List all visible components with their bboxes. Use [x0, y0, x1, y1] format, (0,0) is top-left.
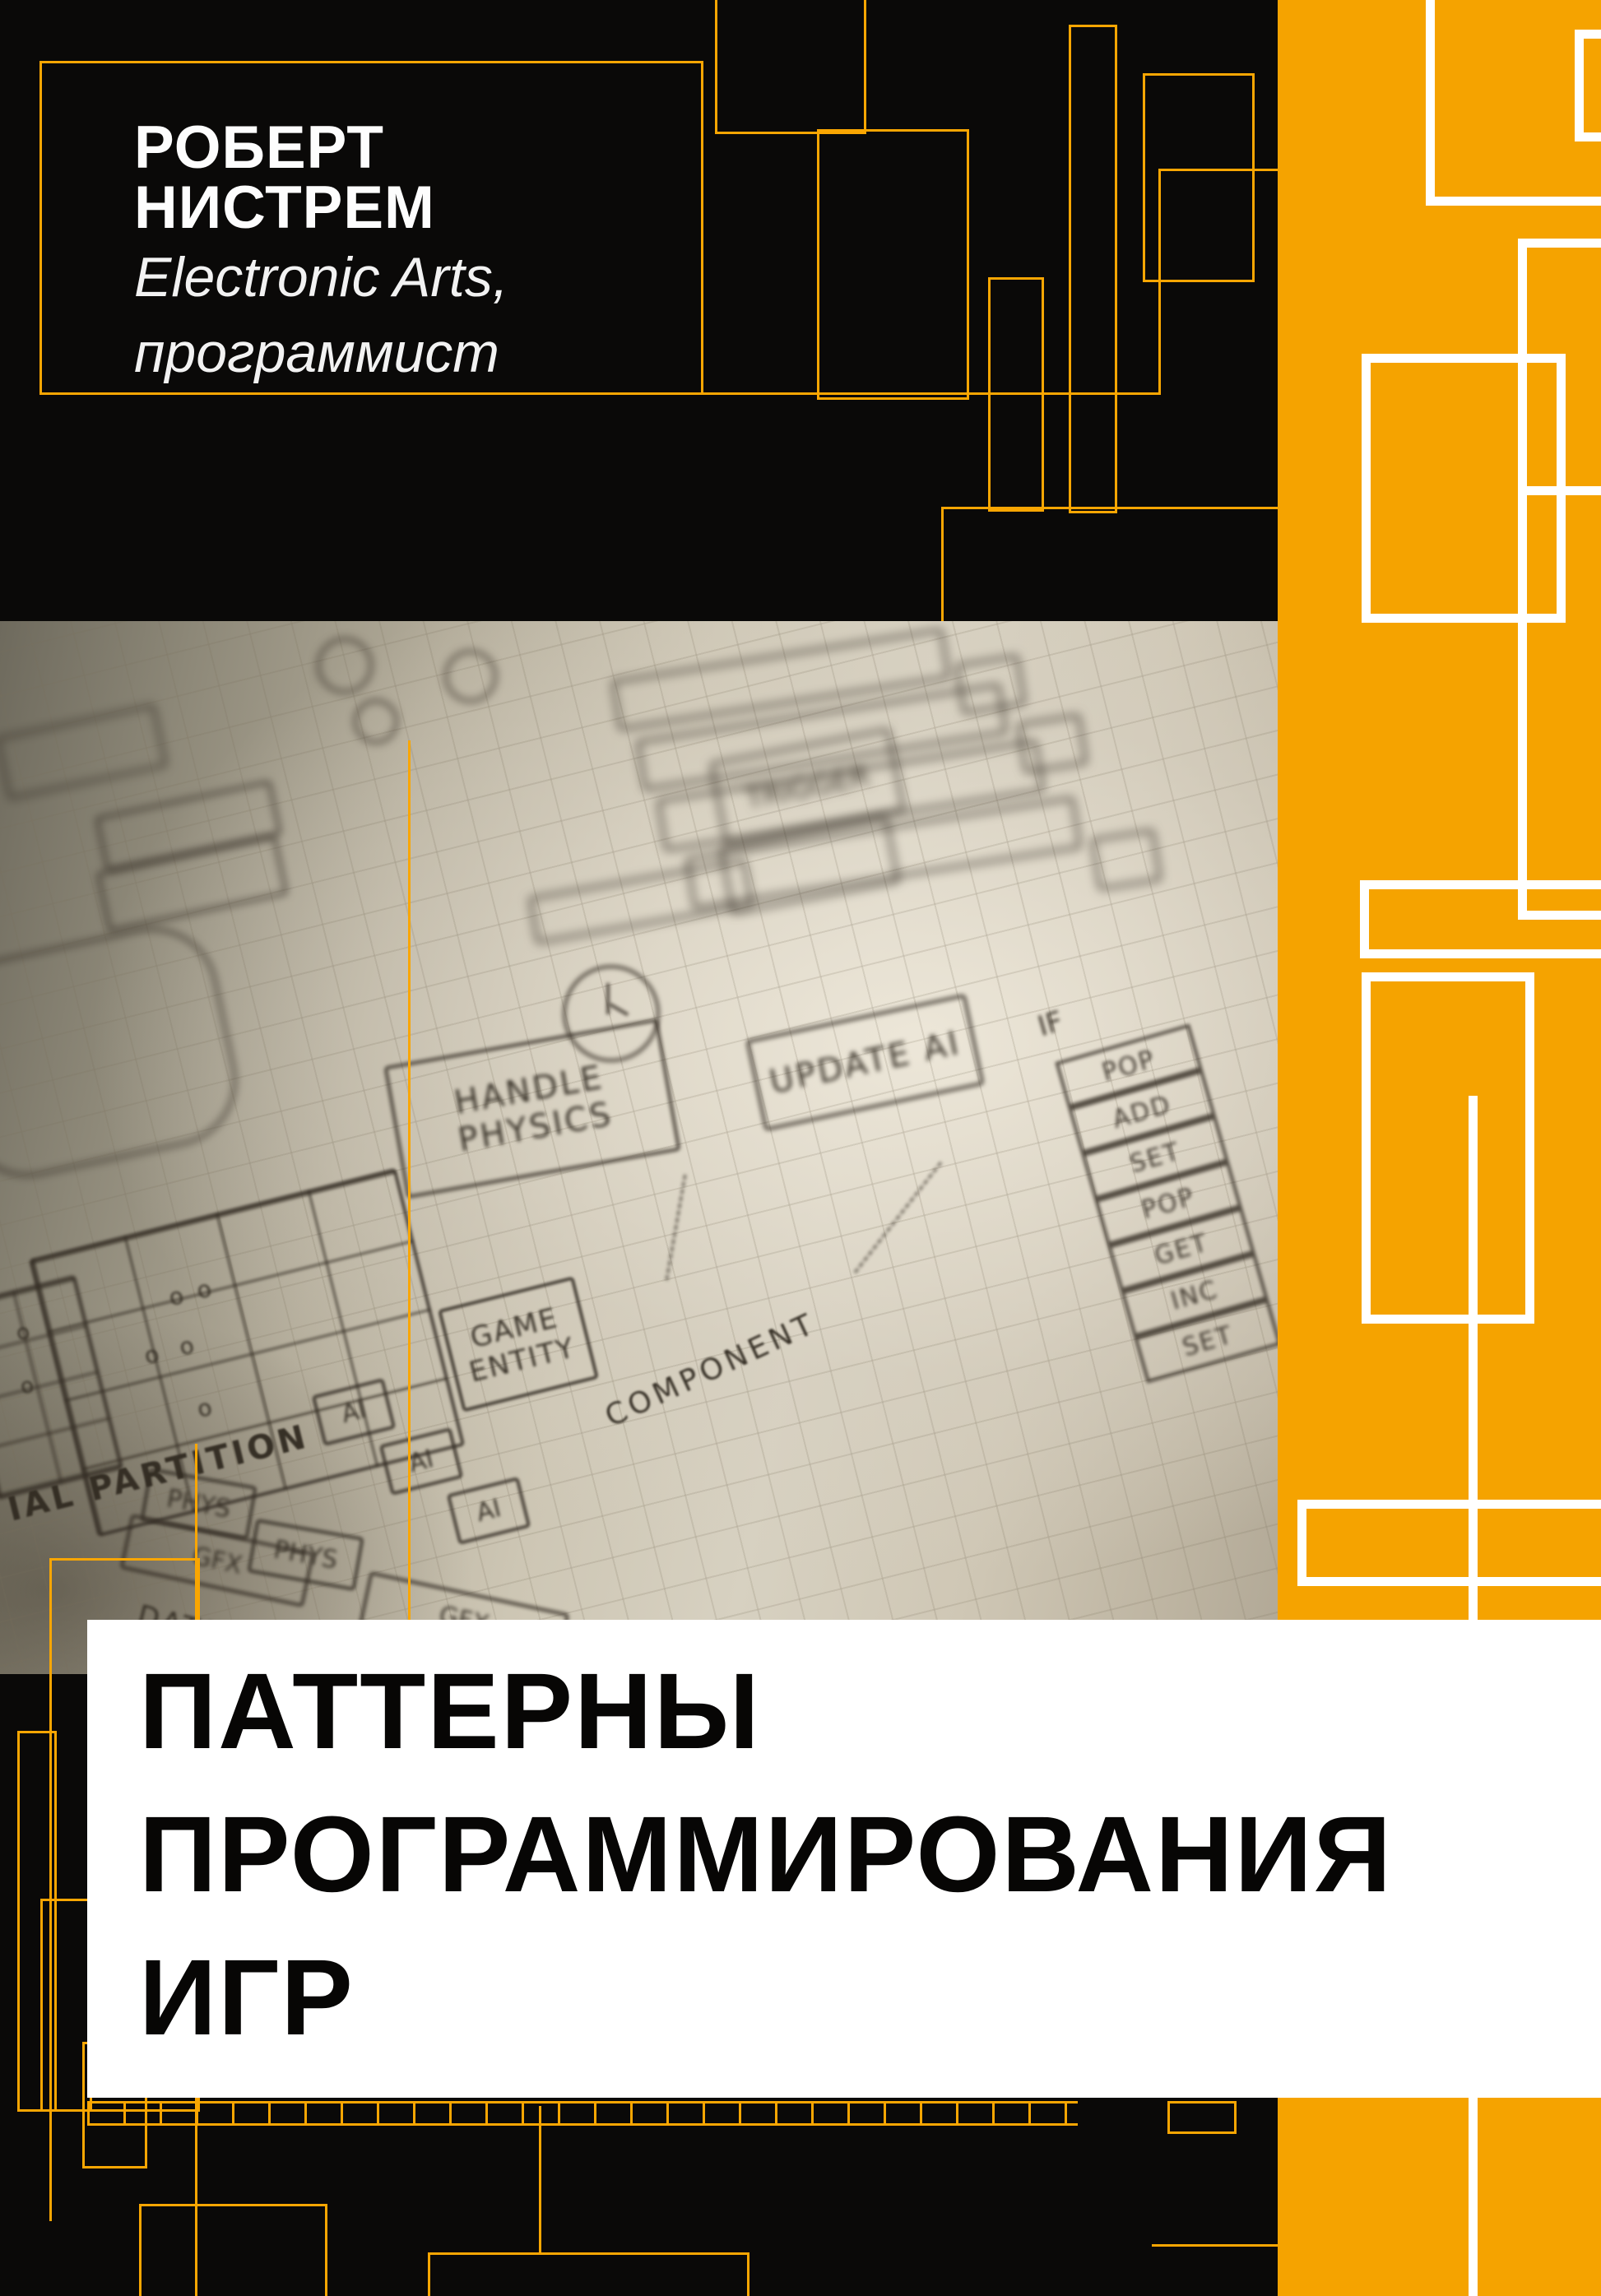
- sketch-circle: [354, 699, 398, 744]
- book-cover: РОБЕРТ НИСТРЕМ Electronic Arts, программ…: [0, 0, 1601, 2296]
- sketch-game-entity-label: GAME ENTITY: [446, 1296, 592, 1393]
- book-title-line1: ПАТТЕРНЫ: [139, 1640, 1601, 1783]
- deco-rect: [1069, 25, 1117, 513]
- white-vertical-line-upper: [1469, 1096, 1478, 1620]
- cover-photo: TRIGGER UPDATE AI HANDLE PHYSICS GAME EN…: [0, 621, 1278, 1674]
- deco-line: [941, 507, 944, 621]
- deco-line: [539, 2106, 541, 2252]
- white-frame-mid: [1362, 972, 1534, 1324]
- ai-label: AI: [474, 1494, 504, 1528]
- sketch-circle: [444, 650, 497, 703]
- deco-ladder: [87, 2101, 1078, 2126]
- white-frame-bar: [1360, 880, 1601, 958]
- deco-rect: [139, 2204, 327, 2296]
- deco-rect: [1167, 2101, 1237, 2134]
- book-title-line2: ПРОГРАММИРОВАНИЯ: [139, 1783, 1601, 1926]
- deco-line: [1152, 2244, 1278, 2247]
- author-name: РОБЕРТ НИСТРЕМ: [134, 118, 684, 238]
- title-banner: ПАТТЕРНЫ ПРОГРАММИРОВАНИЯ ИГР: [87, 1620, 1601, 2098]
- deco-rect: [1143, 73, 1255, 282]
- author-block: РОБЕРТ НИСТРЕМ Electronic Arts, программ…: [134, 118, 684, 381]
- sketch-circle: [317, 638, 373, 693]
- sketch-update-ai-label: UPDATE AI: [766, 1023, 964, 1101]
- deco-rect: [988, 277, 1044, 512]
- author-affiliation: Electronic Arts,: [134, 249, 684, 305]
- white-frame-bottom-bar: [1297, 1500, 1601, 1586]
- sketch-row-cell: [1090, 828, 1162, 890]
- white-frame-center: [1362, 354, 1566, 623]
- sketch-handle-physics-label: HANDLE PHYSICS: [392, 1048, 673, 1170]
- author-frame: РОБЕРТ НИСТРЕМ Electronic Arts, программ…: [39, 61, 703, 395]
- author-role: программист: [134, 325, 684, 381]
- deco-line: [408, 740, 411, 1620]
- sketch-trigger-label: TRIGGER: [743, 758, 872, 814]
- deco-rect: [428, 2252, 749, 2296]
- clock-hand: [606, 983, 610, 1014]
- white-vertical-line-lower: [1469, 2098, 1478, 2296]
- deco-rect: [817, 129, 969, 400]
- book-title-line3: ИГР: [139, 1926, 1601, 2069]
- deco-rect: [715, 0, 866, 134]
- white-frame-top-corner: [1575, 30, 1601, 141]
- deco-line: [941, 507, 1278, 509]
